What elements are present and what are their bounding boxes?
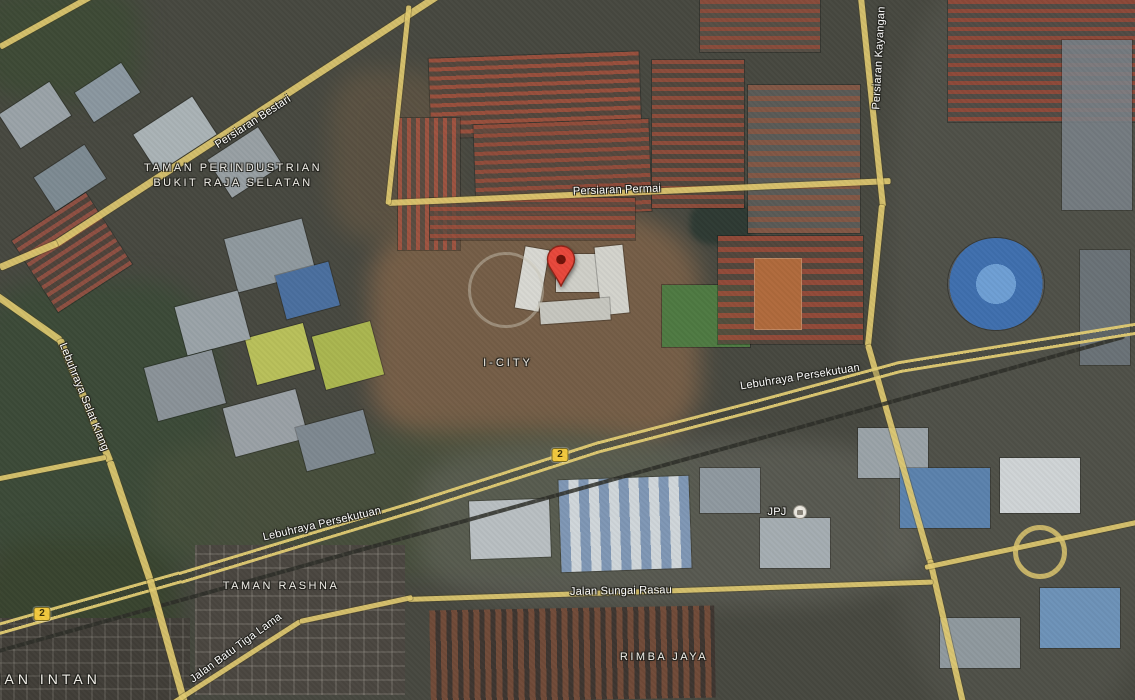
area-label-i-city: I-CITY — [483, 357, 533, 369]
area-label-taman-perindustrian-line2: BUKIT RAJA SELATAN — [144, 176, 322, 191]
route-shield-2-highway: 2 — [552, 448, 569, 462]
road-cloverleaf-loop — [1013, 525, 1067, 579]
area-label-taman-intan: TAMAN INTAN — [0, 671, 101, 687]
area-label-taman-perindustrian-line1: TAMAN PERINDUSTRIAN — [144, 161, 322, 176]
satellite-map-canvas[interactable]: Persiaran Bestari Persiaran Kayangan TAM… — [0, 0, 1135, 700]
building-cluster-red-south-permai — [430, 198, 635, 240]
building-warehouse-w4 — [34, 145, 106, 211]
building-cluster-red-topcenter — [700, 0, 820, 52]
road-persiaran-kayangan-b — [865, 205, 885, 347]
red-location-pin[interactable] — [546, 245, 576, 287]
area-label-taman-rashna: TAMAN RASHNA — [223, 580, 340, 592]
building-warehouse-s6 — [1040, 588, 1120, 648]
route-shield-2-west: 2 — [34, 607, 51, 621]
poi-label-jpj: JPJ — [768, 506, 787, 518]
building-warehouse-s2 — [700, 468, 760, 513]
building-blue-complex — [948, 238, 1044, 330]
jpj-poi-icon[interactable] — [793, 505, 807, 519]
building-cluster-mixed-e — [748, 85, 860, 233]
building-warehouse-s3 — [760, 518, 830, 568]
area-label-rimba-jaya: RIMBA JAYA — [620, 651, 708, 663]
road-label-persiaran-kayangan: Persiaran Kayangan — [870, 6, 887, 110]
road-label-jalan-sungai-rasau: Jalan Sungai Rasau — [570, 584, 672, 598]
area-label-taman-perindustrian: TAMAN PERINDUSTRIAN BUKIT RAJA SELATAN — [144, 161, 322, 191]
building-warehouse-s5 — [1000, 458, 1080, 513]
building-block-e1 — [1062, 40, 1132, 210]
building-glyph-icon — [797, 510, 803, 515]
road-icity-loop — [468, 252, 544, 328]
building-warehouse-yellow-2 — [245, 323, 315, 385]
building-courts-orange — [754, 258, 802, 330]
